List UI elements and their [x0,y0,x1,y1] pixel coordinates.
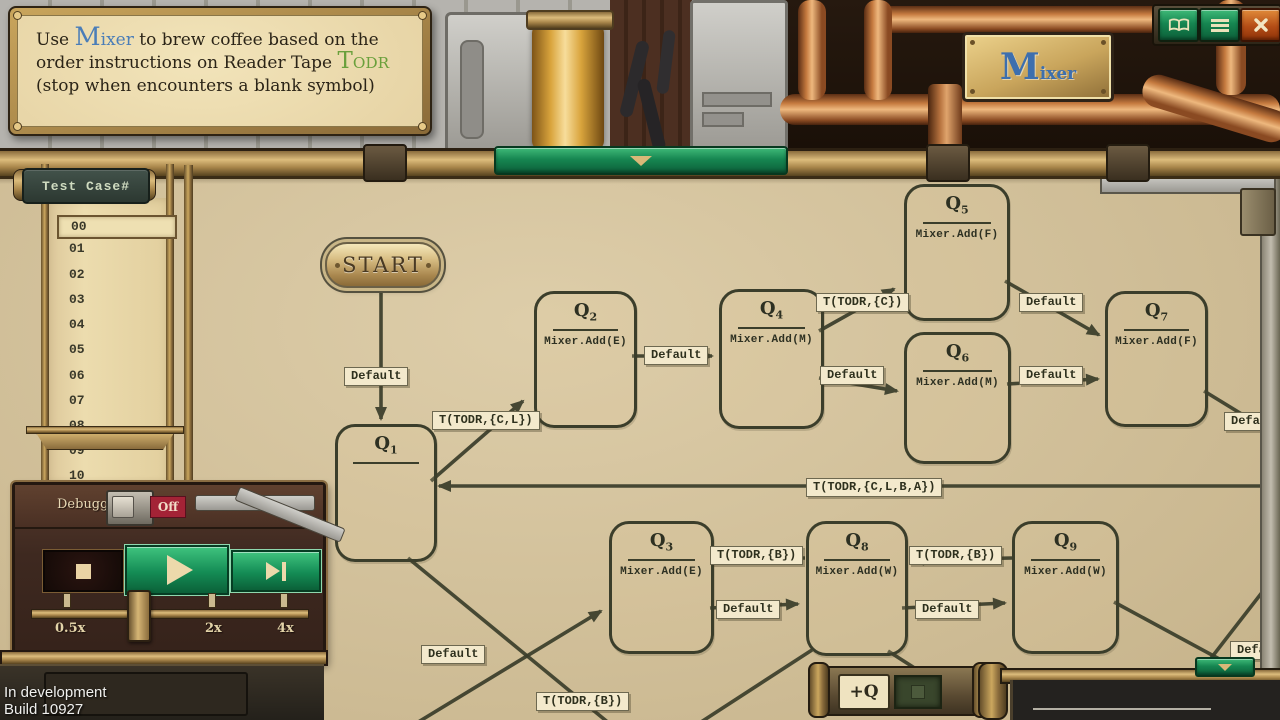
step-forward-icon [266,562,286,581]
state-q7[interactable]: Q7 Mixer.Add(F) [1105,291,1208,427]
instruction-panel: Use Mixer to brew coffee based on the or… [8,6,432,136]
state-sub: 8 [861,541,869,554]
screen-glyph [911,685,925,699]
edge-label[interactable]: T(TODR,{B}) [536,692,629,711]
state-sub: 6 [962,352,970,365]
steel-slot [702,92,772,107]
bottom-drawer-toggle[interactable] [1195,657,1255,677]
machine-screen [894,675,942,709]
rail-clamp [1106,144,1150,182]
state-action: Mixer.Add(W) [1015,566,1116,579]
state-q9[interactable]: Q9 Mixer.Add(W) [1012,521,1119,654]
boiler-collar [526,10,614,30]
copper-pipe-vertical [928,84,962,150]
state-rule [628,559,695,561]
state-rule [553,329,619,331]
test-case-header: Test Case# [22,168,150,204]
rail-clamp [363,144,407,182]
instruction-text: Use Mixer to brew coffee based on the or… [18,16,408,98]
instruction-device-keyword: Mixer [75,29,134,52]
state-sub: 2 [590,311,598,324]
state-rule [923,370,992,372]
tape-baseline [1033,708,1211,710]
gold-boiler-cylinder [532,24,604,150]
state-rule [824,559,889,561]
test-case-row[interactable]: 03 [57,292,169,307]
state-action: Mixer.Add(M) [722,334,821,347]
add-state-button[interactable]: +Q [838,674,890,710]
steel-slot [460,40,484,139]
test-strip-tray [36,433,174,450]
state-q1[interactable]: Q1 [335,424,437,562]
debugger-panel: Debugger Off 0.5x 2x 4x [12,482,326,664]
toggle-knob [112,496,134,518]
state-q4[interactable]: Q4 Mixer.Add(M) [719,289,824,429]
start-label: START [342,253,424,277]
speed-slider-rail[interactable] [31,609,309,619]
edge-q8-bottomleft[interactable] [698,650,812,720]
state-action: Mixer.Add(E) [612,566,711,579]
menu-button[interactable] [1199,8,1240,42]
rail-clamp [926,144,970,182]
speed-slider-handle[interactable] [127,590,151,642]
state-letter: Q [945,193,961,214]
reader-blackboard [1010,680,1280,720]
state-action: Mixer.Add(W) [809,566,905,579]
state-rule [923,222,991,224]
test-case-row[interactable]: 02 [57,267,169,282]
edge-label[interactable]: Default [1019,293,1083,312]
slider-tick [63,593,71,608]
test-case-title: Test Case# [42,179,130,194]
copper-pipe-elbow [1138,71,1280,146]
test-case-row[interactable]: 04 [57,317,169,332]
step-button[interactable] [231,550,321,592]
state-rule [738,327,805,329]
build-info: In development Build 10927 [4,684,107,718]
play-triangle-icon [167,555,193,585]
build-number-text: Build 10927 [4,701,107,718]
edge-label[interactable]: Default [1019,366,1083,385]
test-case-row[interactable]: 07 [57,393,169,408]
test-case-row[interactable]: 06 [57,368,169,383]
edge-label[interactable]: T(TODR,{C,L}) [432,411,540,430]
state-action: Mixer.Add(M) [907,377,1008,390]
game-screen: START Q1 Q2 Mixer.Add(E) Q4 Mixer.Add(M)… [0,0,1280,720]
manual-button[interactable] [1158,8,1199,42]
state-rule [353,462,418,464]
start-screw-right [426,263,431,268]
test-case-row[interactable]: 00 [57,215,177,239]
state-sub: 7 [1161,311,1169,324]
machine-cap-left [808,662,830,718]
add-state-machine: +Q [806,658,992,720]
panel-corner-rivet [418,11,427,20]
state-sub: 1 [390,444,398,457]
state-letter: Q [946,341,962,362]
hamburger-menu-icon [1211,17,1229,34]
test-case-number: 03 [69,292,85,307]
top-right-block [1240,188,1276,236]
edge-label[interactable]: Default [344,367,408,386]
state-letter: Q [574,300,590,321]
debugger-toggle[interactable] [106,490,154,526]
edge-label[interactable]: Default [915,600,979,619]
panel-corner-rivet [13,11,22,20]
edge-label[interactable]: T(TODR,{C}) [816,293,909,312]
test-case-row[interactable]: 05 [57,342,169,357]
edge-label[interactable]: Default [421,645,485,664]
edge-label[interactable]: Default [716,600,780,619]
speed-label-05x[interactable]: 0.5x [55,621,85,636]
test-strip-crossbar [26,426,184,434]
state-letter: Q [1054,530,1070,551]
test-case-number: 05 [69,342,85,357]
start-node[interactable]: START [325,242,441,288]
state-q5[interactable]: Q5 Mixer.Add(F) [904,184,1010,321]
start-screw-left [335,263,340,268]
state-action: Mixer.Add(F) [1108,336,1205,349]
chevron-down-icon [1218,664,1232,671]
top-drawer-toggle[interactable] [494,146,788,175]
copper-pipe-vertical [798,0,826,100]
test-case-number: 06 [69,368,85,383]
stop-button[interactable] [43,550,123,592]
edge-label[interactable]: T(TODR,{B}) [710,546,803,565]
plaque-rivet [970,40,975,45]
close-button[interactable] [1240,8,1280,42]
open-book-icon [1168,17,1190,33]
chevron-down-icon [630,156,652,166]
state-sub: 5 [961,204,969,217]
state-letter: Q [1145,300,1161,321]
copper-pipe-vertical [864,0,892,100]
play-button[interactable] [125,545,229,595]
panel-corner-rivet [13,122,22,131]
test-case-number: 02 [69,267,85,282]
stop-square-icon [76,564,91,579]
toggle-state-text: Off [158,500,178,514]
state-letter: Q [760,298,776,319]
instruction-tape-keyword: TODR [338,53,390,74]
test-case-number: 00 [71,219,87,234]
state-letter: Q [845,530,861,551]
steel-slot [702,112,744,127]
state-sub: 9 [1070,541,1078,554]
slider-tick [208,593,216,608]
state-letter: Q [374,433,390,454]
edge-label[interactable]: Default [820,366,884,385]
outer-pipe [184,165,193,490]
edge-label[interactable]: T(TODR,{B}) [909,546,1002,565]
toggle-state-badge: Off [150,496,186,518]
state-q8[interactable]: Q8 Mixer.Add(W) [806,521,908,656]
instruction-prefix: Use [36,30,75,50]
plaque-rivet [970,89,975,94]
state-rule [1124,329,1190,331]
panel-corner-rivet [418,122,427,131]
speed-label-4x[interactable]: 4x [277,621,294,636]
test-case-number: 04 [69,317,85,332]
steel-plate [690,0,788,150]
edge-label[interactable]: T(TODR,{C,L,B,A}) [806,478,942,497]
plaque-rest: ixer [1040,64,1076,84]
close-x-icon [1253,18,1269,32]
test-case-number: 07 [69,393,85,408]
test-case-panel: 00 01 02 03 04 05 06 07 08 09 10 Test Ca… [0,160,210,490]
plaque-rivet [1101,40,1106,45]
state-sub: 4 [776,309,784,322]
build-status-text: In development [4,684,107,701]
state-sub: 3 [666,541,674,554]
test-case-row[interactable]: 01 [57,241,169,256]
state-action: Mixer.Add(E) [537,336,634,349]
slider-tick [280,593,288,608]
plaque-rivet [1101,89,1106,94]
speed-label-2x[interactable]: 2x [205,621,222,636]
test-case-row[interactable]: 10 [57,468,169,483]
state-q6[interactable]: Q6 Mixer.Add(M) [904,332,1011,464]
test-case-number: 01 [69,241,85,256]
state-action: Mixer.Add(F) [907,229,1007,242]
reader-panel [992,656,1280,720]
state-rule [1031,559,1100,561]
instruction-suffix: (stop when encounters a blank symbol) [36,76,375,96]
state-q3[interactable]: Q3 Mixer.Add(E) [609,521,714,654]
instruction-parchment: Use Mixer to brew coffee based on the or… [17,15,423,127]
state-letter: Q [650,530,666,551]
test-case-number: 10 [69,468,85,483]
plaque-initial: M [1000,46,1040,88]
machine-name-plaque: M ixer [962,32,1114,102]
add-state-label: +Q [849,682,878,702]
edge-label[interactable]: Default [644,346,708,365]
state-q2[interactable]: Q2 Mixer.Add(E) [534,291,637,428]
